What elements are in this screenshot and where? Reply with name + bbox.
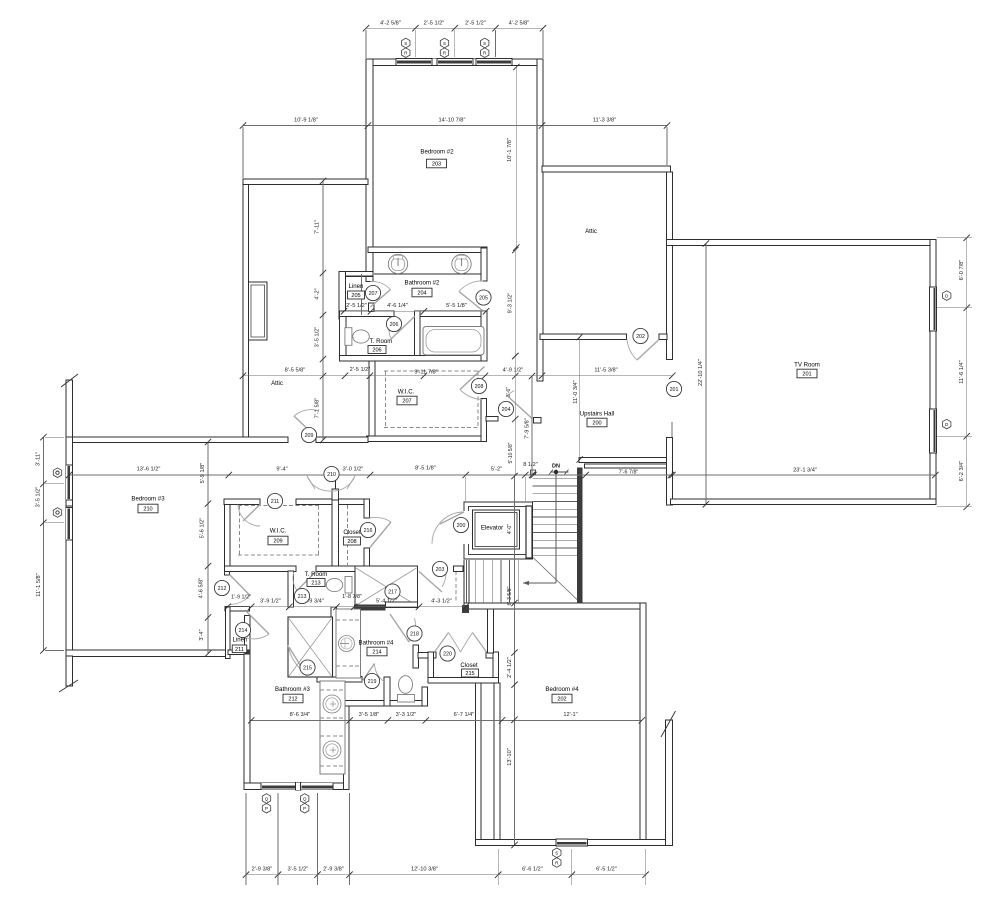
svg-text:22'-10 1/4": 22'-10 1/4" [698, 359, 704, 386]
svg-text:Closet: Closet [460, 662, 478, 669]
svg-text:6'-2 3/4": 6'-2 3/4" [959, 461, 965, 482]
svg-text:S: S [404, 41, 407, 46]
svg-text:2'-5 1/2": 2'-5 1/2" [424, 21, 445, 27]
svg-text:10'-9 1/8": 10'-9 1/8" [294, 118, 318, 124]
svg-text:208: 208 [475, 384, 484, 390]
svg-text:Bathroom #4: Bathroom #4 [359, 640, 395, 647]
svg-text:Q: Q [303, 796, 307, 801]
svg-text:11'-3 3/8": 11'-3 3/8" [593, 118, 616, 124]
svg-text:Closet: Closet [343, 529, 361, 536]
svg-text:6'-5 1/2": 6'-5 1/2" [596, 866, 617, 872]
svg-text:S: S [555, 851, 558, 856]
svg-text:5'-6 1/2": 5'-6 1/2" [200, 518, 206, 539]
svg-text:209: 209 [273, 539, 282, 545]
svg-text:212: 212 [218, 586, 227, 592]
svg-text:8 1/2": 8 1/2" [523, 462, 538, 468]
svg-text:10'-1 7/8": 10'-1 7/8" [507, 138, 513, 162]
svg-text:11'-1 5/8": 11'-1 5/8" [36, 573, 42, 596]
svg-text:2'-5 1/2": 2'-5 1/2" [346, 303, 367, 309]
svg-text:Linen: Linen [349, 283, 364, 290]
svg-text:215: 215 [465, 671, 474, 677]
svg-text:9'-4": 9'-4" [276, 467, 287, 473]
svg-text:208: 208 [347, 539, 356, 545]
svg-text:204: 204 [417, 291, 426, 297]
svg-text:4'-6 5/8": 4'-6 5/8" [199, 578, 205, 599]
svg-text:7'-6 7/8": 7'-6 7/8" [619, 470, 639, 476]
svg-text:13'-10": 13'-10" [507, 748, 513, 766]
svg-text:3'-4": 3'-4" [199, 629, 205, 640]
svg-text:207: 207 [369, 291, 378, 297]
svg-text:Elevator: Elevator [481, 525, 503, 532]
svg-text:201: 201 [670, 387, 679, 393]
svg-text:205: 205 [351, 293, 360, 299]
svg-text:6'-7 1/4": 6'-7 1/4" [454, 712, 475, 718]
svg-text:3'-5 1/2": 3'-5 1/2" [36, 487, 42, 508]
svg-text:3'-6": 3'-6" [506, 387, 512, 397]
svg-text:3'-5 1/2": 3'-5 1/2" [315, 327, 321, 348]
svg-text:T. Room: T. Room [370, 338, 393, 345]
svg-text:218: 218 [410, 632, 419, 638]
svg-text:207: 207 [402, 399, 411, 405]
svg-text:1'-9 1/2": 1'-9 1/2" [231, 595, 251, 601]
svg-text:Bathroom #2: Bathroom #2 [405, 280, 441, 287]
svg-text:W.I.C.: W.I.C. [270, 528, 287, 535]
svg-text:1'-8 7/8": 1'-8 7/8" [342, 594, 362, 600]
svg-text:Attic: Attic [585, 228, 597, 235]
svg-text:216: 216 [364, 528, 373, 534]
svg-text:12'-10 3/8": 12'-10 3/8" [411, 866, 438, 872]
svg-text:214: 214 [372, 650, 381, 656]
svg-text:11'-5 3/8": 11'-5 3/8" [594, 368, 617, 374]
svg-text:209: 209 [305, 433, 314, 439]
svg-text:2'-5 1/2": 2'-5 1/2" [465, 21, 486, 27]
svg-text:204: 204 [502, 407, 511, 413]
svg-text:2'-5 1/2": 2'-5 1/2" [350, 367, 371, 373]
svg-text:219: 219 [368, 679, 377, 685]
svg-text:7'-11": 7'-11" [315, 220, 321, 234]
svg-text:206: 206 [390, 322, 399, 328]
svg-text:Bedroom #2: Bedroom #2 [420, 149, 454, 156]
svg-text:2'-9 3/8": 2'-9 3/8" [252, 866, 273, 872]
svg-text:3'-5 1/8": 3'-5 1/8" [359, 712, 380, 718]
svg-text:206: 206 [372, 348, 381, 354]
svg-text:3'-9 1/2": 3'-9 1/2" [260, 598, 281, 604]
svg-text:Bathroom #3: Bathroom #3 [275, 686, 311, 693]
svg-text:Q: Q [265, 796, 269, 801]
svg-text:4'-2 5/8": 4'-2 5/8" [380, 21, 401, 27]
svg-text:203: 203 [436, 567, 445, 573]
svg-text:Upstairs Hall: Upstairs Hall [580, 411, 615, 418]
svg-text:8'-5 1/8": 8'-5 1/8" [415, 466, 436, 472]
svg-text:211: 211 [271, 499, 279, 505]
svg-text:202: 202 [636, 334, 645, 340]
svg-text:5'-9 1/8": 5'-9 1/8" [200, 463, 206, 484]
svg-text:6'-0 7/8": 6'-0 7/8" [959, 260, 965, 281]
svg-text:4'-6 1/4": 4'-6 1/4" [387, 303, 408, 309]
svg-text:P: P [265, 806, 268, 811]
svg-text:4'-2": 4'-2" [315, 288, 321, 299]
svg-text:W.I.C.: W.I.C. [398, 389, 415, 396]
svg-text:11'-0 3/4": 11'-0 3/4" [573, 380, 579, 403]
svg-text:Bedroom #3: Bedroom #3 [131, 496, 165, 503]
svg-text:12'-1": 12'-1" [563, 712, 577, 718]
svg-text:213: 213 [311, 581, 320, 587]
svg-text:13'-6 1/2": 13'-6 1/2" [137, 467, 161, 473]
svg-text:14'-10 7/8": 14'-10 7/8" [439, 118, 466, 124]
svg-text:9'-11 7/8": 9'-11 7/8" [414, 370, 437, 376]
svg-text:201: 201 [802, 372, 811, 378]
svg-text:Attic: Attic [271, 380, 283, 387]
svg-text:DN: DN [552, 464, 560, 470]
svg-text:6'-6 1/2": 6'-6 1/2" [522, 866, 543, 872]
svg-text:Bedroom #4: Bedroom #4 [545, 686, 579, 693]
svg-text:210: 210 [143, 507, 152, 513]
svg-text:T. Room: T. Room [305, 571, 328, 578]
svg-text:212: 212 [288, 697, 297, 703]
svg-text:7'-9 5/8": 7'-9 5/8" [525, 418, 531, 439]
svg-text:5'-10 5/8": 5'-10 5/8" [508, 442, 514, 463]
svg-text:200: 200 [592, 421, 601, 427]
svg-text:4'-3 1/2": 4'-3 1/2" [431, 598, 452, 604]
svg-text:214: 214 [239, 628, 248, 634]
svg-text:S: S [443, 41, 446, 46]
svg-text:TV Room: TV Room [794, 362, 820, 369]
svg-text:2'-9 3/8": 2'-9 3/8" [323, 866, 344, 872]
svg-text:202: 202 [557, 697, 566, 703]
svg-text:4'-0": 4'-0" [507, 524, 513, 534]
svg-text:23'-1 3/4": 23'-1 3/4" [793, 468, 817, 474]
svg-text:S: S [483, 41, 486, 46]
svg-text:8'-6 3/4": 8'-6 3/4" [290, 712, 311, 718]
svg-text:3'-11": 3'-11" [36, 452, 42, 466]
svg-text:3'-5 1/2": 3'-5 1/2" [287, 866, 308, 872]
svg-text:203: 203 [432, 162, 441, 168]
svg-text:200: 200 [457, 523, 466, 529]
svg-text:215: 215 [303, 666, 312, 672]
svg-text:P: P [303, 806, 306, 811]
svg-text:5'-2": 5'-2" [491, 467, 502, 473]
svg-text:3'-0 1/2": 3'-0 1/2" [343, 467, 364, 473]
svg-text:210: 210 [327, 472, 336, 478]
svg-text:9'-3 1/2": 9'-3 1/2" [508, 293, 514, 314]
svg-text:6'-3 5/8": 6'-3 5/8" [507, 586, 513, 605]
svg-text:213: 213 [298, 594, 307, 600]
svg-text:3'-3 1/2": 3'-3 1/2" [396, 712, 417, 718]
svg-text:8'-5 5/8": 8'-5 5/8" [285, 368, 306, 374]
svg-text:2'-4 1/2": 2'-4 1/2" [507, 657, 513, 678]
svg-text:217: 217 [388, 590, 397, 596]
svg-text:4'-2 5/8": 4'-2 5/8" [509, 21, 530, 27]
svg-text:211: 211 [235, 647, 244, 653]
svg-text:4'-9 1/2": 4'-9 1/2" [503, 368, 524, 374]
svg-text:11'-6 1/4": 11'-6 1/4" [959, 360, 965, 383]
svg-text:7'-1 5/8": 7'-1 5/8" [315, 398, 321, 419]
svg-text:205: 205 [479, 296, 488, 302]
svg-text:220: 220 [443, 652, 452, 658]
svg-text:5'-5 1/8": 5'-5 1/8" [446, 303, 467, 309]
